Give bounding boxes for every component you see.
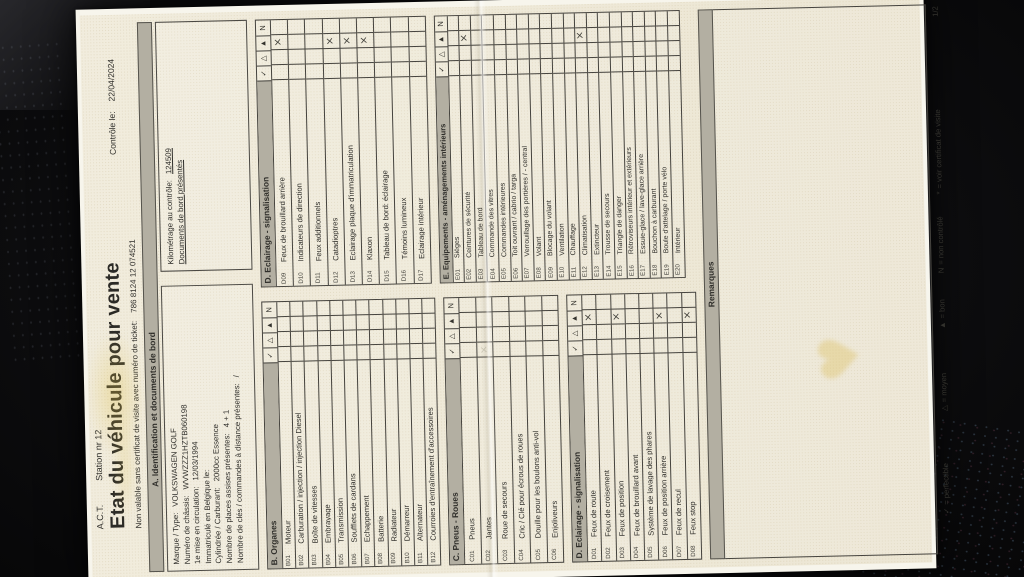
bon-column-icon: ▲: [568, 310, 582, 325]
item-label: Eclairage intérieur: [414, 76, 426, 258]
item-code: D07: [676, 535, 683, 559]
item-label: Cric / Clé pour écrous de roues: [514, 356, 526, 538]
item-code: C03: [503, 539, 510, 563]
mark-cell-perfectible: [506, 59, 517, 74]
item-label: Douille pour les boulons anti-vol: [531, 356, 543, 538]
section-table-E: E. Equipements - aménagements intérieurs…: [433, 9, 685, 283]
item-label: Feux de route: [587, 355, 599, 537]
mark-cell-moyen: [668, 323, 682, 338]
mark-cell-noncontrole: [459, 297, 475, 312]
noncontrole-column-icon: N: [567, 295, 581, 310]
mark-cell-noncontrole: [582, 294, 596, 309]
mark-cell-perfectible: [291, 346, 304, 361]
km-value: 124509: [163, 147, 175, 173]
mark-cell-moyen: [599, 42, 610, 57]
mark-cell-noncontrole: [317, 301, 330, 316]
mark-cell-bon: [317, 316, 330, 331]
mark-cell-noncontrole: [343, 300, 356, 315]
mark-cell-noncontrole: [357, 17, 374, 32]
mark-cell-noncontrole: [459, 15, 470, 30]
mark-cell-noncontrole: [668, 293, 682, 308]
photo-background: ♥ A.C.T. Station nr 12 Etat du véhicule …: [0, 0, 1024, 577]
moyen-column-icon: △: [568, 325, 582, 340]
page-number: 1/2: [930, 6, 939, 17]
mark-cell-bon: [278, 316, 291, 331]
mark-cell-moyen: [383, 329, 396, 344]
item-label: Feux de position: [615, 354, 627, 536]
mark-cell-moyen: [526, 326, 542, 341]
item-code: B06: [352, 542, 359, 566]
item-code: D03: [620, 536, 627, 560]
mark-cell-bon: ×: [323, 33, 340, 48]
item-label: Catadioptres: [328, 78, 340, 260]
mark-cell-bon: [645, 26, 656, 41]
mark-cell-moyen: [357, 330, 370, 345]
x-mark: ×: [325, 33, 336, 48]
mark-cell-perfectible: [423, 343, 436, 358]
legend-item: N= non contrôlé: [935, 216, 945, 273]
mark-cell-bon: [668, 308, 682, 323]
mark-cell-perfectible: [669, 338, 683, 353]
mark-cell-perfectible: [541, 58, 552, 73]
mark-cell-perfectible: [305, 346, 318, 361]
mark-cell-noncontrole: [290, 301, 303, 316]
mark-cell-noncontrole: [610, 12, 621, 27]
x-mark: ×: [612, 308, 623, 323]
mark-cell-perfectible: [599, 57, 610, 72]
item-code: B02: [299, 543, 306, 567]
mark-cell-bon: [610, 27, 621, 42]
mark-cell-moyen: [340, 48, 357, 63]
mark-cell-perfectible: [634, 56, 645, 71]
mark-cell-bon: [409, 313, 422, 328]
item-label: Système de lavage des phares: [643, 353, 655, 535]
identification-box: Marque / Type:VOLKSWAGEN GOLFNuméro de c…: [161, 283, 259, 571]
mark-cell-perfectible: [357, 345, 370, 360]
x-mark: ×: [583, 309, 594, 324]
mark-cell-noncontrole: [422, 298, 435, 313]
mark-cell-bon: [656, 26, 667, 41]
item-label: Feux de croisement: [601, 354, 613, 536]
noncontrole-column-icon: N: [444, 298, 458, 313]
left-column: B. Organes✓△▲NB01MoteurB02Carburation / …: [261, 291, 702, 569]
mark-cell-moyen: [495, 44, 506, 59]
item-code: E12: [583, 255, 590, 279]
mark-cell-moyen: [583, 324, 597, 339]
mark-cell-noncontrole: [340, 18, 357, 33]
mark-cell-bon: [517, 29, 528, 44]
mark-cell-bon: [370, 314, 383, 329]
item-code: E19: [664, 253, 671, 277]
mark-cell-noncontrole: [563, 13, 574, 28]
mark-cell-noncontrole: [408, 16, 425, 31]
mark-cell-bon: [542, 310, 558, 325]
mark-cell-perfectible: [384, 344, 397, 359]
legend-text: = perfectible: [941, 463, 951, 505]
mark-cell-bon: [526, 311, 542, 326]
item-label: Roue de secours: [498, 357, 510, 539]
mark-cell-moyen: [597, 324, 611, 339]
mark-cell-moyen: [668, 41, 679, 56]
mark-cell-perfectible: [392, 62, 409, 77]
mark-cell-perfectible: [460, 60, 471, 75]
noncontrole-column-icon: N: [262, 302, 276, 317]
mark-cell-bon: ×: [654, 308, 668, 323]
mark-cell-noncontrole: [494, 14, 505, 29]
mark-cell-moyen: [370, 329, 383, 344]
item-code: E01: [455, 258, 462, 282]
x-mark: ×: [342, 33, 353, 48]
mark-cell-perfectible: [318, 346, 331, 361]
mark-cell-perfectible: [358, 62, 375, 77]
remarques-empty-box: [712, 4, 937, 559]
mark-cell-bon: [552, 28, 563, 43]
item-code: D04: [634, 536, 641, 560]
form-content: A.C.T. Station nr 12 Etat du véhicule po…: [76, 0, 937, 577]
mark-cell-noncontrole: [668, 11, 679, 26]
mark-cell-perfectible: [612, 339, 626, 354]
ticket-label: Non valable sans certificat de visite av…: [130, 320, 144, 528]
item-code: E02: [467, 257, 474, 281]
mark-cell-perfectible: [472, 60, 483, 75]
kilometrage-box: Kilométrage au contrôle: 124509 Document…: [155, 19, 253, 271]
mark-cell-bon: [304, 316, 317, 331]
mark-cell-perfectible: [449, 61, 460, 76]
bon-column-icon: ▲: [445, 313, 459, 328]
item-code: D09: [281, 261, 288, 285]
mark-cell-moyen: [289, 49, 306, 64]
mark-cell-bon: [564, 28, 575, 43]
perfectible-column-icon: ✓: [257, 65, 271, 80]
mark-cell-perfectible: [341, 63, 358, 78]
mark-cell-perfectible: [331, 345, 344, 360]
mark-cell-moyen: [654, 323, 668, 338]
x-mark: ×: [359, 32, 370, 47]
controle-label: Contrôle le:: [107, 111, 118, 155]
mark-cell-noncontrole: [587, 12, 598, 27]
mark-cell-moyen: [392, 47, 409, 62]
mark-cell-perfectible: [518, 59, 529, 74]
mark-cell-moyen: [611, 324, 625, 339]
mark-cell-noncontrole: [391, 17, 408, 32]
item-code: B03: [312, 543, 319, 567]
mark-cell-noncontrole: [552, 13, 563, 28]
mark-cell-noncontrole: [639, 293, 653, 308]
mark-cell-perfectible: [510, 341, 526, 356]
item-code: B01: [286, 543, 293, 567]
item-code: B04: [325, 543, 332, 567]
mark-cell-moyen: [483, 45, 494, 60]
item-code: B05: [338, 542, 345, 566]
legend-symbol-icon: N: [936, 267, 945, 273]
mark-cell-noncontrole: [597, 294, 611, 309]
ident-value: 2000cc Essence: [211, 423, 223, 480]
mark-cell-moyen: [410, 328, 423, 343]
item-code: D01: [591, 536, 598, 560]
mark-cell-moyen: [657, 41, 668, 56]
docs-presented-label: Documents de bord présentés: [174, 159, 187, 264]
mark-cell-noncontrole: [305, 19, 322, 34]
mark-cell-noncontrole: [304, 301, 317, 316]
right-column: D. Eclairage - signalisation✓△▲ND09Feux …: [255, 9, 696, 287]
mark-cell-moyen: [529, 44, 540, 59]
mark-cell-moyen: [460, 327, 476, 342]
mark-cell-noncontrole: [540, 13, 551, 28]
mark-cell-moyen: [460, 45, 471, 60]
legend-item: ✓= perfectible: [941, 463, 951, 514]
mark-cell-bon: [668, 26, 679, 41]
section-table-B: B. Organes✓△▲NB01MoteurB02Carburation / …: [261, 297, 441, 569]
ident-value: 12/03/1994: [191, 441, 202, 480]
mark-cell-moyen: [610, 42, 621, 57]
mark-cell-noncontrole: [330, 300, 343, 315]
mark-cell-noncontrole: [370, 299, 383, 314]
section-table-D1: D. Eclairage - signalisation✓△▲ND01Feux …: [566, 291, 702, 562]
mark-cell-moyen: [506, 44, 517, 59]
mark-cell-perfectible: [553, 58, 564, 73]
mark-cell-moyen: [634, 41, 645, 56]
x-mark: ×: [575, 27, 586, 42]
mark-cell-bon: [622, 27, 633, 42]
mark-cell-moyen: [543, 325, 559, 340]
mark-cell-moyen: [397, 329, 410, 344]
x-mark: ×: [683, 307, 694, 322]
mark-cell-perfectible: [460, 342, 476, 357]
perfectible-column-icon: ✓: [436, 61, 448, 76]
mark-cell-moyen: [471, 45, 482, 60]
mark-cell-bon: [344, 315, 357, 330]
mark-cell-bon: [306, 34, 323, 49]
mark-cell-moyen: [304, 331, 317, 346]
mark-cell-perfectible: [278, 346, 291, 361]
remarques-section: Remarques: [697, 4, 937, 559]
ident-value: /: [231, 374, 242, 376]
mark-cell-noncontrole: [611, 294, 625, 309]
mark-cell-bon: ×: [583, 309, 597, 324]
mark-cell-perfectible: [495, 59, 506, 74]
item-code: C05: [536, 538, 543, 562]
document-paper: ♥ A.C.T. Station nr 12 Etat du véhicule …: [76, 0, 937, 577]
mark-cell-perfectible: [543, 340, 559, 355]
item-code: D11: [316, 261, 323, 285]
x-mark: ×: [654, 308, 665, 323]
mark-cell-bon: ×: [340, 33, 357, 48]
mark-cell-bon: ×: [459, 30, 470, 45]
mark-cell-perfectible: [375, 62, 392, 77]
mark-cell-perfectible: [564, 58, 575, 73]
item-code: E15: [617, 254, 624, 278]
mark-cell-perfectible: [306, 64, 323, 79]
x-mark: ×: [459, 30, 470, 45]
mark-cell-moyen: [682, 322, 696, 337]
mark-cell-bon: ×: [357, 32, 374, 47]
item-code: E08: [536, 256, 543, 280]
item-code: B07: [365, 542, 372, 566]
bon-column-icon: ▲: [263, 317, 277, 332]
item-code: E13: [594, 254, 601, 278]
mark-cell-noncontrole: [476, 297, 492, 312]
item-code: E17: [641, 253, 648, 277]
mark-cell-bon: [625, 308, 639, 323]
mark-cell-perfectible: [622, 57, 633, 72]
perfectible-column-icon: ✓: [568, 340, 582, 355]
mark-cell-moyen: [564, 43, 575, 58]
mark-cell-moyen: [357, 47, 374, 62]
moyen-column-icon: △: [435, 46, 447, 61]
moyen-column-icon: △: [445, 328, 459, 343]
item-code: E14: [606, 254, 613, 278]
item-label: Pneus: [465, 357, 477, 539]
item-label: Eclairage plaque d'immatriculation: [345, 78, 357, 260]
item-label: Klaxon: [362, 78, 374, 260]
mark-cell-bon: [509, 311, 525, 326]
mark-cell-perfectible: [483, 60, 494, 75]
mark-cell-perfectible: [669, 56, 680, 71]
mark-cell-noncontrole: [505, 14, 516, 29]
section-table-D2: D. Eclairage - signalisation✓△▲ND09Feux …: [255, 15, 432, 287]
item-label: Tableau de bord: éclairage: [380, 77, 392, 259]
mark-cell-moyen: [323, 48, 340, 63]
section-a-boxes: Marque / Type:VOLKSWAGEN GOLFNuméro de c…: [155, 19, 259, 571]
mark-cell-bon: [288, 34, 305, 49]
item-code: E09: [548, 255, 555, 279]
mark-cell-moyen: [510, 326, 526, 341]
item-label: Témoins lumineux: [397, 77, 409, 259]
mark-cell-bon: [383, 314, 396, 329]
item-label: Enjoliveurs: [547, 355, 559, 537]
mark-cell-noncontrole: [633, 11, 644, 26]
controle-date: 22/04/2024: [106, 58, 117, 101]
item-label: Indicateurs de direction: [294, 79, 306, 261]
mark-cell-bon: [460, 312, 476, 327]
item-code: D06: [662, 535, 669, 559]
mark-cell-moyen: [640, 323, 654, 338]
perfectible-column-icon: ✓: [263, 347, 277, 362]
mark-cell-noncontrole: [542, 295, 558, 310]
mark-cell-perfectible: [646, 56, 657, 71]
mark-cell-noncontrole: [396, 299, 409, 314]
mark-cell-noncontrole: [653, 293, 667, 308]
mark-cell-perfectible: [323, 63, 340, 78]
item-code: E18: [652, 253, 659, 277]
mark-cell-bon: [587, 27, 598, 42]
mark-cell-bon: [409, 31, 426, 46]
mark-cell-moyen: [423, 328, 436, 343]
mark-cell-moyen: [622, 42, 633, 57]
item-code: D08: [691, 534, 698, 558]
noncontrole-column-icon: N: [434, 16, 446, 31]
mark-cell-bon: [483, 30, 494, 45]
legend-text: = voir certificat de visite: [933, 109, 944, 188]
legend-text: = moyen: [939, 372, 949, 402]
mark-cell-moyen: [477, 327, 493, 342]
fabric-speckles-left: [0, 38, 81, 362]
mark-cell-noncontrole: [682, 292, 696, 307]
mark-cell-moyen: [331, 330, 344, 345]
mark-cell-bon: [396, 314, 409, 329]
mark-cell-noncontrole: [482, 15, 493, 30]
mark-cell-bon: [633, 26, 644, 41]
item-code: E06: [513, 256, 520, 280]
item-code: D16: [402, 259, 409, 283]
item-label: Feux additionnels: [311, 79, 323, 261]
mark-cell-moyen: [626, 323, 640, 338]
mark-cell-noncontrole: [525, 296, 541, 311]
mark-cell-moyen: [344, 330, 357, 345]
item-code: E20: [675, 253, 682, 277]
item-code: E03: [478, 257, 485, 281]
item-code: E11: [571, 255, 578, 279]
item-label: Feux de recul: [672, 353, 684, 535]
mark-cell-bon: [357, 315, 370, 330]
mark-cell-moyen: [291, 331, 304, 346]
mark-cell-bon: [391, 32, 408, 47]
item-label: Jantes: [481, 357, 493, 539]
mark-cell-perfectible: [272, 64, 289, 79]
moyen-column-icon: △: [257, 50, 271, 65]
item-code: E04: [490, 257, 497, 281]
mark-cell-moyen: [409, 46, 426, 61]
mark-cell-noncontrole: [625, 294, 639, 309]
mark-cell-bon: [494, 29, 505, 44]
mark-cell-bon: [506, 29, 517, 44]
mark-cell-moyen: [272, 49, 289, 64]
mark-cell-noncontrole: [529, 14, 540, 29]
mark-cell-bon: [374, 32, 391, 47]
mark-cell-bon: [493, 311, 509, 326]
item-code: B12: [431, 540, 438, 564]
mark-cell-moyen: [552, 43, 563, 58]
item-label: Feux de brouillard avant: [629, 354, 641, 536]
mark-cell-bon: [639, 308, 653, 323]
mark-cell-moyen: [493, 326, 509, 341]
mark-cell-perfectible: [344, 345, 357, 360]
item-label: Courroies d'entraînement d'accessoires: [426, 358, 438, 540]
x-mark: ×: [273, 34, 284, 49]
mark-cell-noncontrole: [621, 12, 632, 27]
mark-cell-bon: [448, 31, 459, 46]
mark-cell-perfectible: [493, 341, 509, 356]
mark-cell-perfectible: [409, 61, 426, 76]
table-columns: B. Organes✓△▲NB01MoteurB02Carburation / …: [255, 9, 702, 569]
item-code: C02: [486, 539, 493, 563]
mark-cell-perfectible: [583, 339, 597, 354]
mark-cell-noncontrole: [575, 13, 586, 28]
item-code: B08: [378, 541, 385, 565]
item-code: D17: [419, 258, 426, 282]
item-code: E10: [559, 255, 566, 279]
mark-cell-noncontrole: [656, 11, 667, 26]
mark-cell-noncontrole: [598, 12, 609, 27]
mark-cell-moyen: [541, 43, 552, 58]
item-code: B11: [418, 540, 425, 564]
item-code: D14: [367, 260, 374, 284]
item-code: E05: [502, 256, 509, 280]
mark-cell-bon: ×: [271, 34, 288, 49]
mark-cell-bon: [599, 27, 610, 42]
mark-cell-noncontrole: [517, 14, 528, 29]
legend-item: ▲= bon: [937, 299, 947, 329]
mark-cell-perfectible: [611, 57, 622, 72]
legend-symbol-icon: △: [940, 405, 949, 411]
mark-cell-noncontrole: [277, 301, 290, 316]
section-table-C: C. Pneus - Roues✓△▲NC01PneusC02Jantes×C0…: [443, 294, 564, 565]
mark-cell-bon: ×: [611, 309, 625, 324]
mark-cell-perfectible: [530, 59, 541, 74]
mark-cell-moyen: [518, 44, 529, 59]
act-label: A.C.T.: [95, 504, 106, 529]
mark-cell-perfectible: [626, 338, 640, 353]
